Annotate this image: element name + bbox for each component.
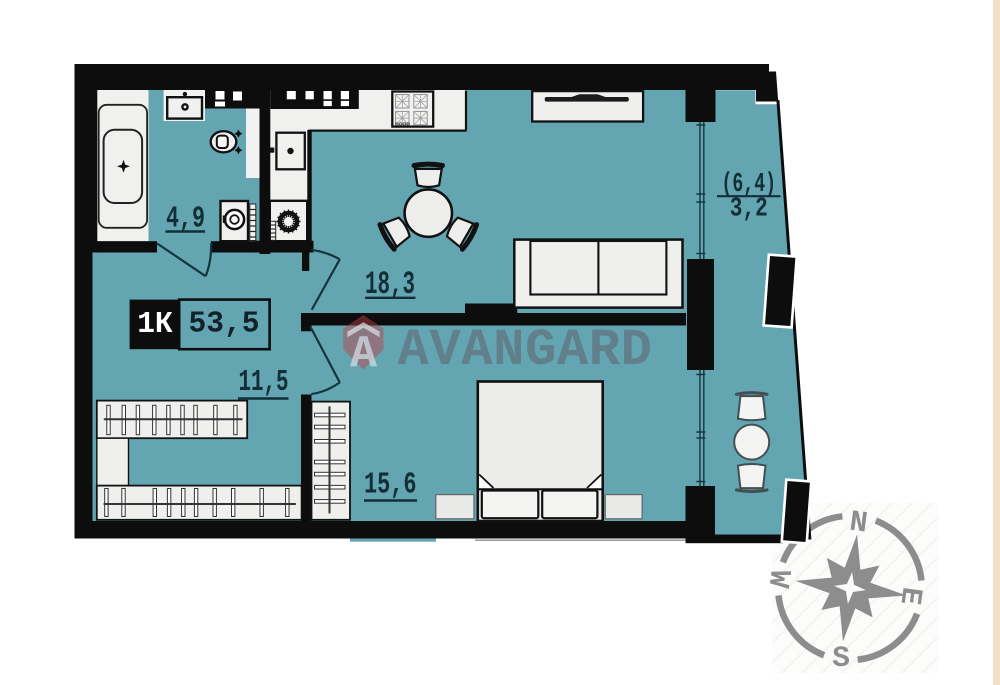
svg-text:A: A [350,330,377,381]
svg-text:S: S [832,641,850,675]
svg-text:11,5: 11,5 [239,365,289,400]
svg-text:15,6: 15,6 [364,468,417,503]
svg-text:AVANGARD: AVANGARD [398,321,653,380]
svg-text:3,2: 3,2 [730,195,768,225]
svg-text:53,5: 53,5 [189,307,260,342]
svg-text:1К: 1К [137,307,173,342]
